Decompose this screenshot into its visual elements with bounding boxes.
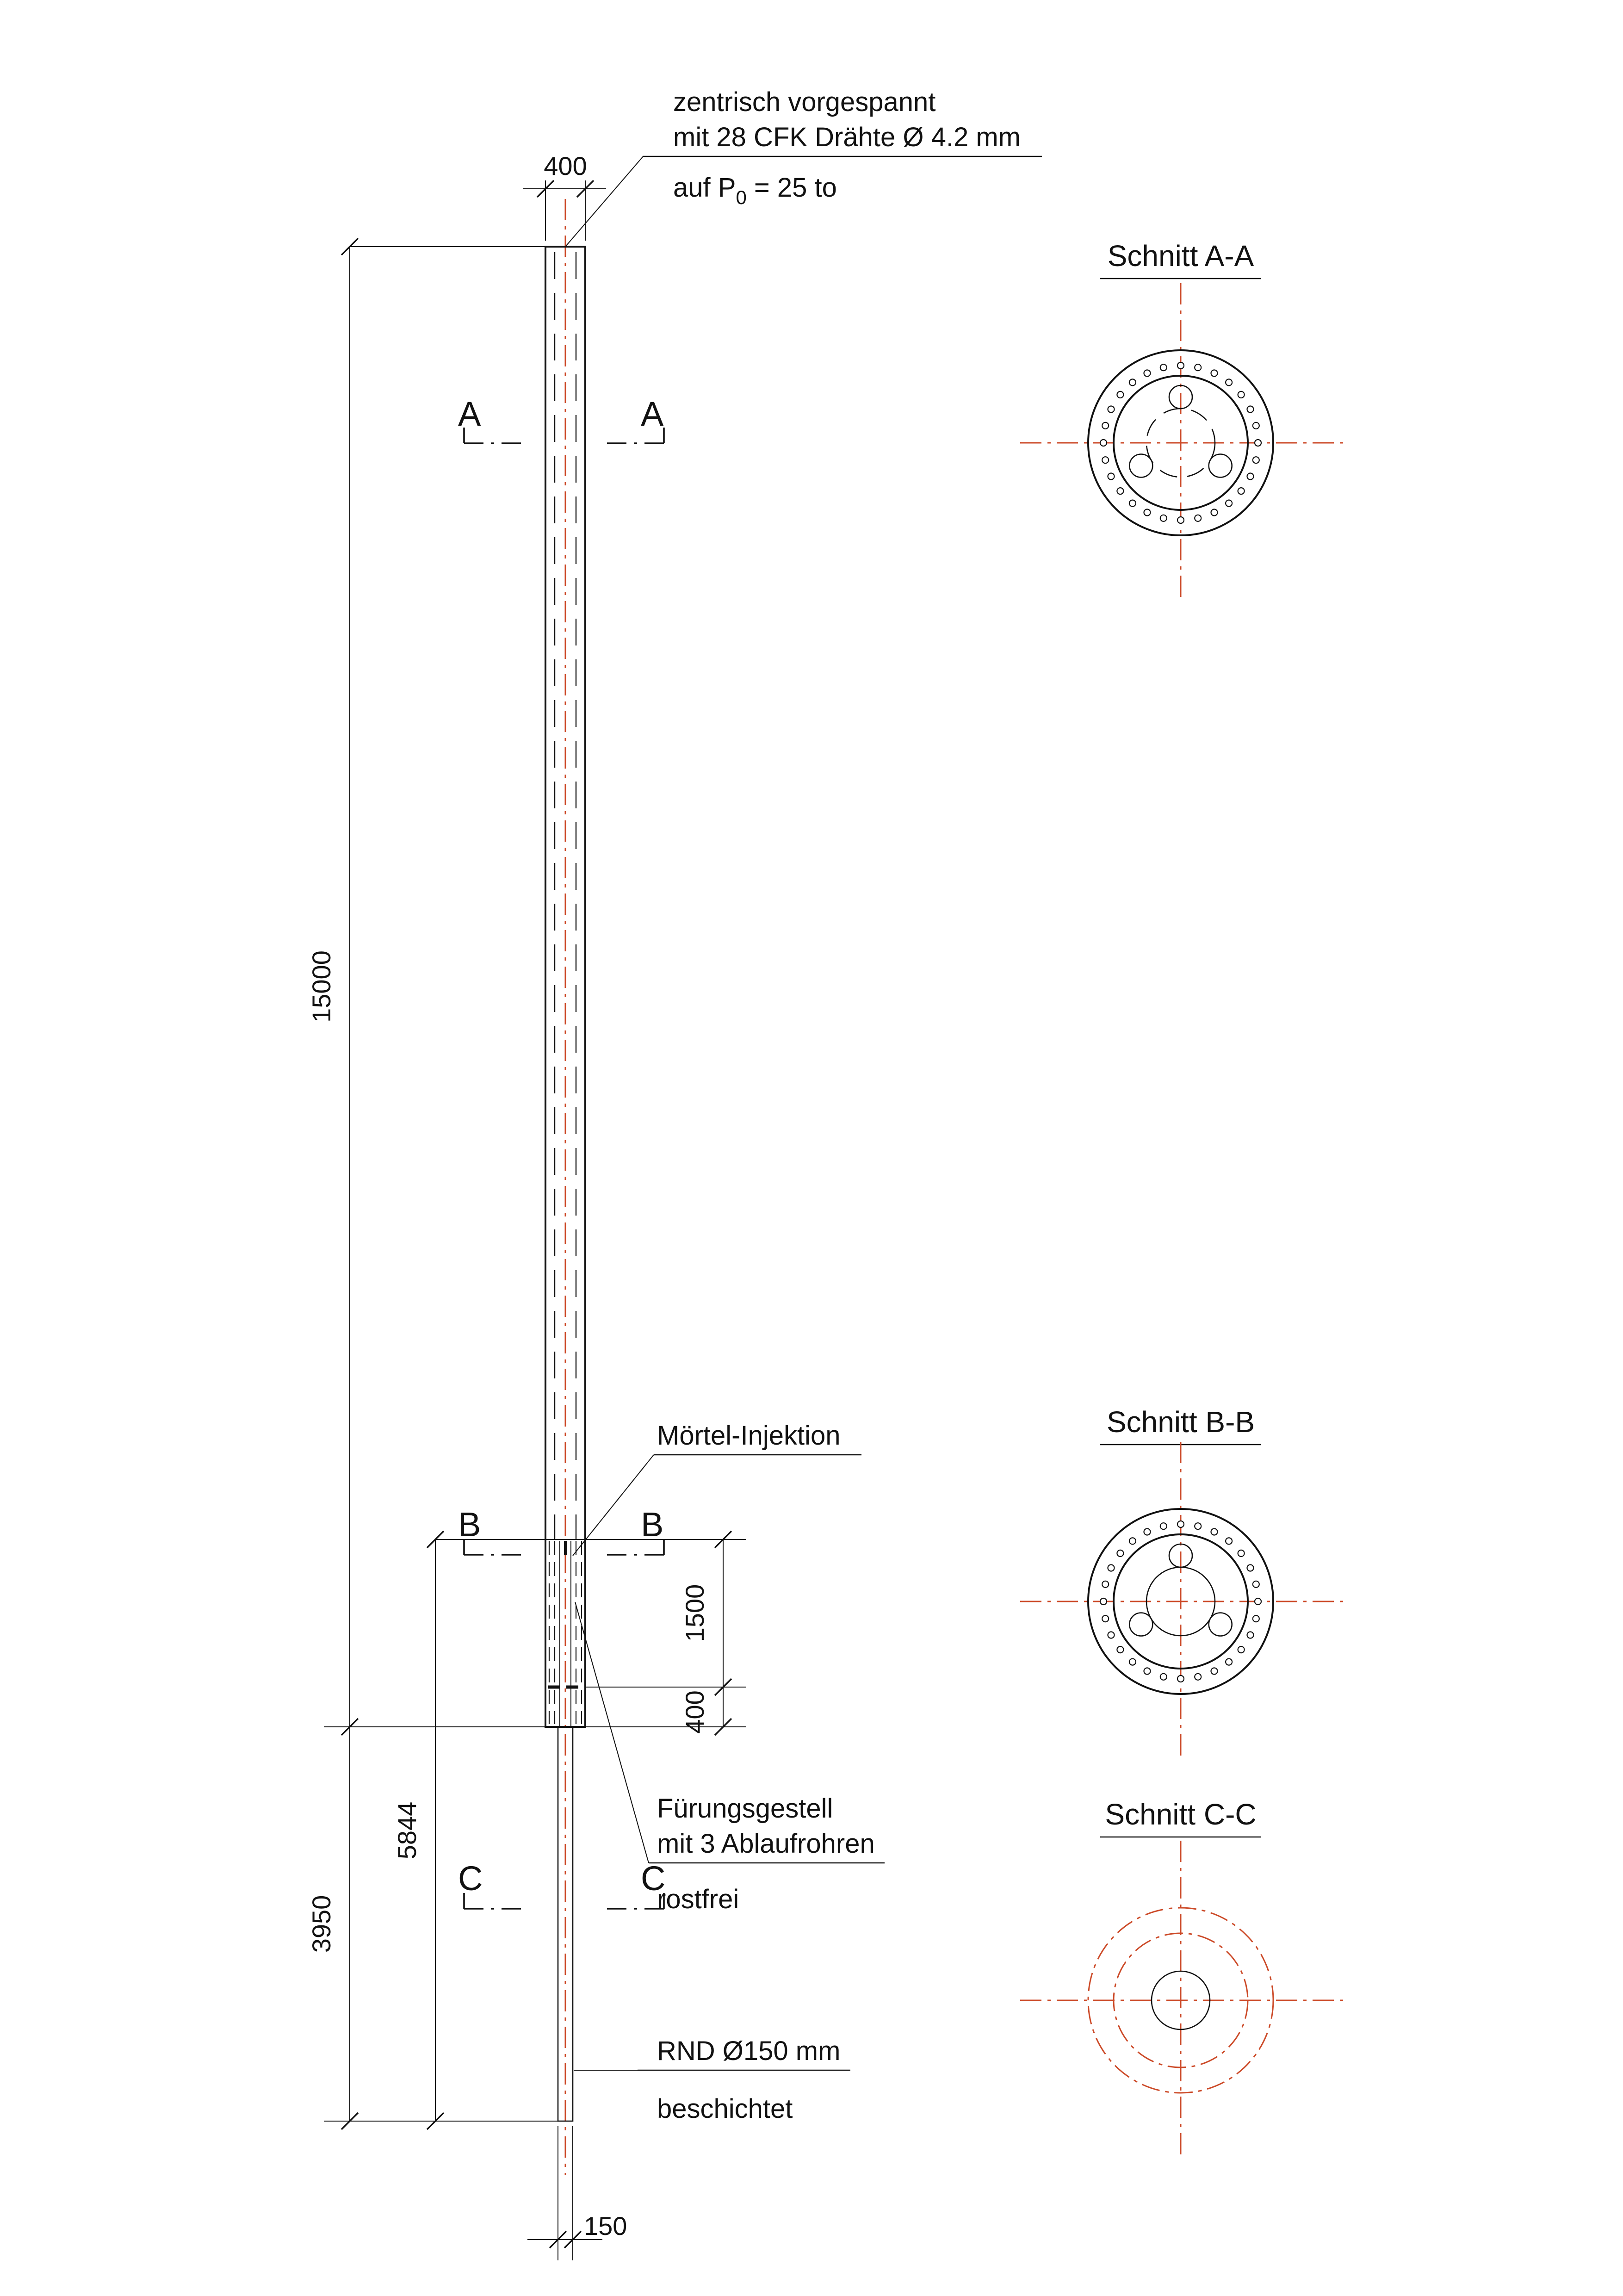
marker-b-left: B xyxy=(458,1505,481,1544)
cfk-wire-dot xyxy=(1102,1581,1109,1588)
cfk-wire-dot xyxy=(1144,370,1151,377)
cfk-wire-dot xyxy=(1160,364,1167,371)
cfk-wire-dot xyxy=(1247,1565,1254,1571)
elevation-view xyxy=(545,199,585,2175)
prestress-line1: zentrisch vorgespannt xyxy=(673,87,935,117)
mortar-label: Mörtel-Injektion xyxy=(657,1421,840,1451)
drawing-page: 400 15000 3950 5844 1500 400 150 xyxy=(0,0,1623,2296)
section-c: Schnitt C-C xyxy=(1020,1798,1344,2160)
cfk-wire-dot xyxy=(1226,500,1232,507)
cfk-wire-dot xyxy=(1160,1674,1167,1680)
cfk-wire-dot xyxy=(1129,1659,1136,1665)
section-markers: A A B B C C xyxy=(458,395,665,1909)
cfk-wire-dot xyxy=(1160,1523,1167,1529)
section-a: Schnitt A-A xyxy=(1020,239,1344,602)
dim-rod-exposed: 3950 xyxy=(307,1895,336,1953)
cfk-wire-dot xyxy=(1177,517,1184,523)
cfk-wire-dot xyxy=(1195,515,1201,521)
marker-b-right: B xyxy=(641,1505,663,1544)
cfk-wire-dot xyxy=(1247,1632,1254,1638)
cfk-wire-dot xyxy=(1226,379,1232,385)
dim-guide-lower: 400 xyxy=(680,1690,709,1733)
cfk-wire-dot xyxy=(1117,391,1123,398)
cfk-wire-dot xyxy=(1238,1550,1245,1557)
dimensions: 400 15000 3950 5844 1500 400 150 xyxy=(307,151,746,2260)
cfk-wire-dot xyxy=(1226,1659,1232,1665)
section-b-drainpipe-right xyxy=(1209,1613,1232,1636)
cfk-wire-dot xyxy=(1100,1598,1107,1605)
cfk-wire-dot xyxy=(1195,1674,1201,1680)
cfk-wire-dot xyxy=(1253,422,1259,429)
section-b-title: Schnitt B-B xyxy=(1107,1405,1255,1439)
cfk-wire-dot xyxy=(1211,509,1218,516)
dim-rod-width: 150 xyxy=(584,2211,627,2240)
section-a-drainpipe-right xyxy=(1209,454,1232,478)
cfk-wire-dot xyxy=(1226,1538,1232,1544)
prestress-line2: mit 28 CFK Drähte Ø 4.2 mm xyxy=(673,122,1021,152)
cfk-wire-dot xyxy=(1247,473,1254,480)
cfk-wire-dot xyxy=(1211,1529,1218,1535)
marker-a-left: A xyxy=(458,395,481,433)
cfk-wire-dot xyxy=(1177,1521,1184,1527)
dim-lower-total: 5844 xyxy=(392,1802,421,1860)
rod-line1: RND Ø150 mm xyxy=(657,2036,840,2066)
cfk-wire-dot xyxy=(1144,509,1151,516)
cfk-wire-dot xyxy=(1253,1615,1259,1622)
cfk-wire-dot xyxy=(1117,488,1123,494)
cfk-wire-dot xyxy=(1100,440,1107,446)
cfk-wire-dot xyxy=(1108,1565,1115,1571)
cfk-wire-dot xyxy=(1144,1529,1151,1535)
annotation-guide: Fürungsgestell mit 3 Ablaufrohren rostfr… xyxy=(575,1602,885,1914)
cfk-wire-dot xyxy=(1129,379,1136,385)
cfk-wire-dot xyxy=(1238,488,1245,494)
cfk-wire-dot xyxy=(1195,364,1201,371)
cfk-wire-dot xyxy=(1255,440,1261,446)
cfk-wire-dot xyxy=(1117,1550,1123,1557)
prestress-line3: auf P0 = 25 to xyxy=(673,173,837,208)
annotation-rod: RND Ø150 mm beschichtet xyxy=(574,2036,850,2124)
guide-line1: Fürungsgestell xyxy=(657,1793,833,1824)
section-b-drainpipe-left xyxy=(1129,1613,1152,1636)
section-a-drainpipe-left xyxy=(1129,454,1152,478)
dim-top-width: 400 xyxy=(544,151,587,180)
cfk-wire-dot xyxy=(1253,1581,1259,1588)
cfk-wire-dot xyxy=(1102,457,1109,463)
dim-pole-length: 15000 xyxy=(307,950,336,1023)
rod-line2: beschichtet xyxy=(657,2094,793,2124)
cfk-wire-dot xyxy=(1238,391,1245,398)
technical-drawing: 400 15000 3950 5844 1500 400 150 xyxy=(0,0,1623,2296)
annotation-mortar: Mörtel-Injektion xyxy=(573,1421,861,1556)
cfk-wire-dot xyxy=(1211,1668,1218,1675)
guide-leader xyxy=(575,1602,649,1863)
section-a-title: Schnitt A-A xyxy=(1108,239,1254,273)
cfk-wire-dot xyxy=(1177,1675,1184,1682)
cfk-wire-dot xyxy=(1144,1668,1151,1675)
cfk-wire-dot xyxy=(1108,1632,1115,1638)
marker-a-right: A xyxy=(641,395,664,433)
cfk-wire-dot xyxy=(1211,370,1218,377)
cfk-wire-dot xyxy=(1160,515,1167,521)
cfk-wire-dot xyxy=(1129,500,1136,507)
cfk-wire-dot xyxy=(1129,1538,1136,1544)
guide-line3: rostfrei xyxy=(657,1884,739,1914)
cfk-wire-dot xyxy=(1102,422,1109,429)
cfk-wire-dot xyxy=(1253,457,1259,463)
cfk-wire-dot xyxy=(1238,1646,1245,1653)
cfk-wire-dot xyxy=(1195,1523,1201,1529)
cfk-wire-dot xyxy=(1108,473,1115,480)
section-c-title: Schnitt C-C xyxy=(1105,1798,1256,1831)
cfk-wire-dot xyxy=(1247,406,1254,413)
cfk-wire-dot xyxy=(1117,1646,1123,1653)
section-b: Schnitt B-B xyxy=(1020,1405,1344,1761)
marker-c-left: C xyxy=(458,1859,483,1898)
guide-line2: mit 3 Ablaufrohren xyxy=(657,1829,875,1859)
annotation-prestress: zentrisch vorgespannt mit 28 CFK Drähte … xyxy=(565,87,1042,247)
cfk-wire-dot xyxy=(1108,406,1115,413)
cfk-wire-dot xyxy=(1102,1615,1109,1622)
cfk-wire-dot xyxy=(1177,362,1184,369)
cfk-wire-dot xyxy=(1255,1598,1261,1605)
dim-guide-upper: 1500 xyxy=(680,1584,709,1642)
